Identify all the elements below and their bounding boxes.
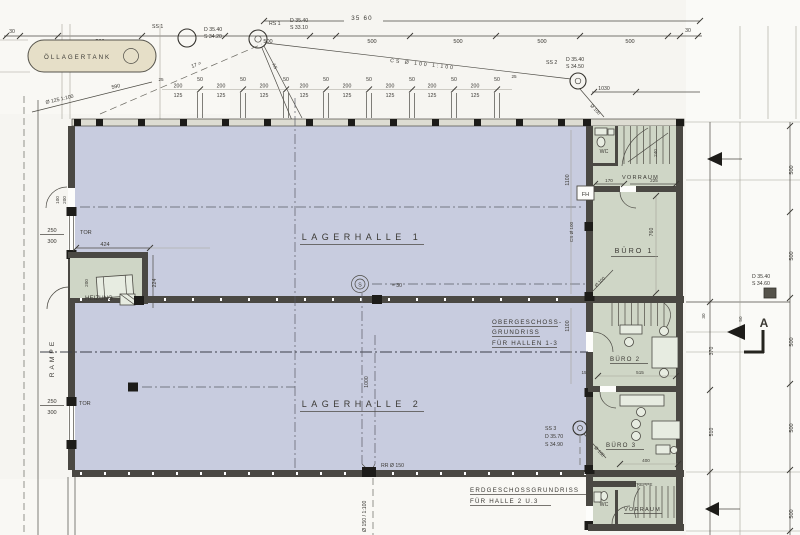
oil-tank: ÖLLAGERTANK (28, 40, 156, 72)
dim-25: 25 (158, 77, 164, 82)
caption-og-line3: FÜR HALLEN 1-3 (492, 340, 558, 347)
level-hd-cover: D 35.40 (752, 274, 770, 280)
caption-og-line1: OBERGESCHOSS- (492, 319, 562, 326)
lower-entry-wall (588, 481, 636, 487)
floor-plan-drawing: 50 200 125 35 60 30 500 500 500 500 500 … (0, 0, 800, 535)
shaft-ss3-label: SS 3 (545, 426, 556, 432)
top-wall (72, 119, 684, 126)
dim-515: 515 (636, 370, 644, 375)
dim-500-v: 500 (789, 165, 795, 174)
stairs-lower-label: TREPPE (634, 482, 652, 487)
entry-lower-label: VORRAUM (624, 507, 661, 513)
office2-chair2 (660, 327, 669, 336)
caption-eg-line1: ERDGESCHOSSGRUNDRISS (470, 487, 579, 494)
boiler-room-label: HEIZUNG (85, 295, 113, 302)
office2-desk (652, 337, 678, 368)
dim-224: 224 (152, 279, 158, 288)
oil-tank-label: ÖLLAGERTANK (44, 54, 111, 61)
dim-510: 510 (709, 428, 715, 437)
dim-15: 15 (581, 370, 587, 375)
gate2-label: TOR (79, 401, 91, 407)
floor-drain-s-note: ≈ 30 (392, 283, 402, 289)
dim-250: 250 (47, 399, 56, 405)
dim-250: 250 (47, 228, 56, 234)
dim-500: 500 (263, 39, 272, 45)
rain-pipe-fall-label: Ø 150 / 1:100 (362, 500, 368, 532)
level-hd-invert: S 34.60 (752, 281, 770, 287)
hall1-label: LAGERHALLE 1 (302, 232, 423, 242)
office3-chair3 (632, 432, 641, 441)
caption-og-line2: GRUNDRISS (492, 329, 540, 336)
dim-50-small: 50 (738, 316, 743, 322)
dim-30-left: 30 (9, 29, 15, 35)
dim-200-heizung: 200 (84, 279, 89, 287)
office3-sidetable (656, 445, 670, 454)
dim-500-v: 500 (789, 337, 795, 346)
shaft-ss3-cover-level: D 35.70 (545, 434, 563, 440)
shaft-ss2-invert-level: S 34.50 (566, 64, 584, 70)
dim-424: 424 (100, 242, 109, 248)
dim-400: 400 (642, 458, 650, 463)
office3-label: BÜRO 3 (606, 442, 636, 449)
shaft-rs1-invert-level: S 33.10 (290, 25, 308, 31)
office1-label: BÜRO 1 (615, 246, 654, 255)
halls: LAGERHALLE 1 LAGERHALLE 2 S ≈ 30 RR Ø 15… (40, 98, 684, 535)
dim-1000: 1000 (364, 376, 370, 388)
fire-hydrant-label: FH (582, 192, 589, 198)
dim-500: 500 (453, 39, 462, 45)
caption-eg-line2: FÜR HALLE 2 U.3 (470, 498, 539, 505)
office2-chair1 (625, 338, 634, 347)
dim-370: 370 (709, 347, 715, 356)
floor-plan-sheet: 50 200 125 35 60 30 500 500 500 500 500 … (0, 0, 800, 535)
dim-240: 240 (653, 149, 658, 157)
office3-chair1 (637, 408, 646, 417)
dim-30-small: 30 (701, 313, 706, 319)
ramp-label: RAMPE (49, 339, 56, 377)
wc-lower-fixtures (594, 492, 608, 503)
shaft-ss3-invert-level: S 34.90 (545, 442, 563, 448)
wc-upper-label: WC (600, 149, 609, 155)
office3-chair4 (671, 447, 678, 454)
dim-500-v: 500 (789, 251, 795, 260)
dim-1030: 1030 (598, 86, 610, 92)
pipe-cs100-wall-label: CS Ø 100 (569, 221, 574, 242)
dim-500: 500 (537, 39, 546, 45)
dim-500: 500 (625, 39, 634, 45)
dim-25: 25 (511, 74, 517, 79)
dim-300: 300 (47, 410, 56, 416)
dim-1100-hall2: 1100 (565, 320, 571, 331)
dim-760: 760 (649, 228, 655, 237)
hall1-floor (75, 126, 588, 297)
shaft-rs1-label: RS 1 (269, 21, 281, 27)
floor-drain-s-label: S (358, 283, 362, 289)
dim-225: 225 (650, 178, 658, 183)
dim-300: 300 (47, 239, 56, 245)
section-a-letter: A (760, 316, 769, 330)
office2-shelf (620, 325, 642, 334)
office3-desk2 (652, 421, 680, 439)
rain-pipe-label: RR Ø 150 (381, 463, 404, 469)
dim-30-right: 30 (685, 28, 691, 34)
dim-500-v: 500 (789, 423, 795, 432)
office2-label: BÜRO 2 (610, 356, 640, 363)
dim-door-200: 200 (62, 196, 67, 204)
office-bottom-wall (588, 524, 684, 531)
shaft-ss2-cover-level: D 35.40 (566, 57, 584, 63)
dim-door-100: 100 (55, 196, 60, 204)
shaft-ss1-cover-level: D 35.40 (204, 27, 222, 33)
wc-lower-label: WC (600, 502, 609, 508)
rain-pipe-marker (362, 467, 376, 477)
dim-1100-hall1: 1100 (565, 174, 571, 185)
shaft-rs1-cover-level: D 35.40 (290, 18, 308, 24)
dim-500: 500 (367, 39, 376, 45)
hall2-label: LAGERHALLE 2 (302, 399, 423, 409)
shaft-ss1-label: SS 1 (152, 24, 163, 30)
office3-desk1 (620, 395, 664, 406)
dim-total-width: 35 60 (351, 15, 372, 22)
gate1-label: TOR (80, 230, 92, 236)
office3-chair2 (632, 420, 641, 429)
shaft-ss1-invert-level: S 34.20 (204, 34, 222, 40)
dim-500-v: 500 (789, 509, 795, 518)
right-margin-paper (686, 0, 800, 535)
dim-170: 170 (605, 178, 613, 183)
shaft-ss2-label: SS 2 (546, 60, 557, 66)
